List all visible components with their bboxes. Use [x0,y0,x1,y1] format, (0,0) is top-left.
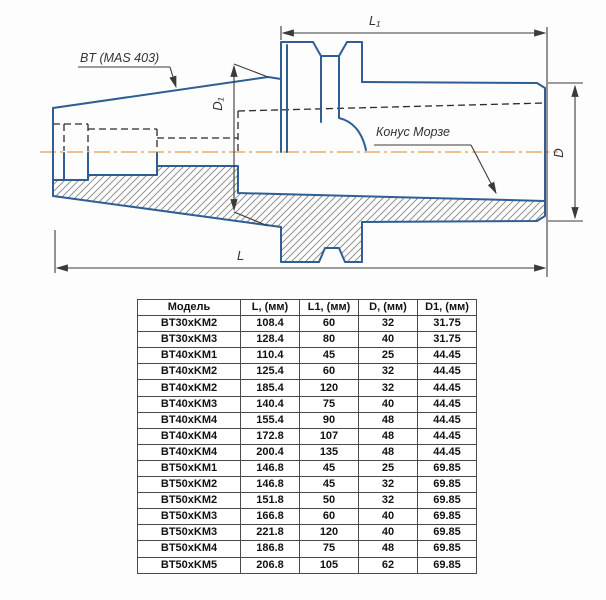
spec-table: Модель L, (мм) L1, (мм) D, (мм) D1, (мм)… [137,299,477,574]
value-cell: 40 [359,332,418,348]
model-cell: BT50xKM4 [138,541,241,557]
value-cell: 200.4 [241,444,300,460]
value-cell: 107 [300,428,359,444]
column-header-l1: L1, (мм) [300,300,359,316]
value-cell: 128.4 [241,332,300,348]
table-row: BT40xKM4200.41354844.45 [138,444,477,460]
d1-dimension-label: D₁ [210,97,225,111]
spec-table-body: BT30xKM2108.4603231.75BT30xKM3128.480403… [138,316,477,574]
value-cell: 75 [300,541,359,557]
section-hatch [53,166,545,262]
value-cell: 44.45 [418,428,477,444]
model-cell: BT40xKM4 [138,444,241,460]
value-cell: 155.4 [241,412,300,428]
value-cell: 45 [300,460,359,476]
value-cell: 48 [359,541,418,557]
value-cell: 50 [300,493,359,509]
value-cell: 80 [300,332,359,348]
value-cell: 32 [359,477,418,493]
model-cell: BT40xKM4 [138,428,241,444]
value-cell: 69.85 [418,477,477,493]
table-row: BT50xKM2151.8503269.85 [138,493,477,509]
value-cell: 45 [300,348,359,364]
table-row: BT30xKM3128.4804031.75 [138,332,477,348]
model-cell: BT50xKM1 [138,460,241,476]
value-cell: 48 [359,428,418,444]
value-cell: 120 [300,525,359,541]
model-cell: BT50xKM5 [138,557,241,573]
model-cell: BT40xKM4 [138,412,241,428]
table-row: BT50xKM3221.81204069.85 [138,525,477,541]
value-cell: 90 [300,412,359,428]
table-row: BT50xKM2146.8453269.85 [138,477,477,493]
morse-taper-callout: Конус Морзе [374,125,496,193]
value-cell: 31.75 [418,316,477,332]
value-cell: 60 [300,316,359,332]
value-cell: 146.8 [241,460,300,476]
column-header-model: Модель [138,300,241,316]
model-cell: BT30xKM3 [138,332,241,348]
value-cell: 32 [359,316,418,332]
value-cell: 25 [359,348,418,364]
value-cell: 32 [359,364,418,380]
value-cell: 44.45 [418,412,477,428]
value-cell: 40 [359,525,418,541]
hidden-bore-lines [53,103,545,151]
bt-callout-label: BT (MAS 403) [80,51,159,65]
table-row: BT30xKM2108.4603231.75 [138,316,477,332]
table-row: BT40xKM1110.4452544.45 [138,348,477,364]
model-cell: BT40xKM1 [138,348,241,364]
value-cell: 186.8 [241,541,300,557]
value-cell: 44.45 [418,380,477,396]
value-cell: 140.4 [241,396,300,412]
value-cell: 151.8 [241,493,300,509]
value-cell: 62 [359,557,418,573]
value-cell: 60 [300,509,359,525]
value-cell: 69.85 [418,557,477,573]
value-cell: 60 [300,364,359,380]
table-row: BT40xKM3140.4754044.45 [138,396,477,412]
value-cell: 32 [359,493,418,509]
model-cell: BT50xKM3 [138,509,241,525]
value-cell: 221.8 [241,525,300,541]
model-cell: BT40xKM2 [138,380,241,396]
table-row: BT40xKM2125.4603244.45 [138,364,477,380]
value-cell: 45 [300,477,359,493]
model-cell: BT40xKM2 [138,364,241,380]
value-cell: 120 [300,380,359,396]
value-cell: 206.8 [241,557,300,573]
table-row: BT40xKM2185.41203244.45 [138,380,477,396]
value-cell: 105 [300,557,359,573]
value-cell: 69.85 [418,509,477,525]
l1-dimension-label: L₁ [369,13,380,28]
value-cell: 166.8 [241,509,300,525]
model-cell: BT50xKM3 [138,525,241,541]
table-row: BT50xKM1146.8452569.85 [138,460,477,476]
table-row: BT40xKM4172.81074844.45 [138,428,477,444]
value-cell: 69.85 [418,460,477,476]
d-dimension-label: D [551,148,566,157]
value-cell: 44.45 [418,348,477,364]
value-cell: 40 [359,509,418,525]
dimension-d: D [548,83,583,221]
value-cell: 69.85 [418,541,477,557]
model-cell: BT40xKM3 [138,396,241,412]
table-row: BT50xKM3166.8604069.85 [138,509,477,525]
table-row: BT50xKM5206.81056269.85 [138,557,477,573]
table-row: BT40xKM4155.4904844.45 [138,412,477,428]
value-cell: 48 [359,444,418,460]
value-cell: 75 [300,396,359,412]
value-cell: 31.75 [418,332,477,348]
value-cell: 125.4 [241,364,300,380]
l-dimension-label: L [237,248,244,263]
model-cell: BT50xKM2 [138,493,241,509]
bt-callout-leader [170,67,176,87]
value-cell: 135 [300,444,359,460]
value-cell: 185.4 [241,380,300,396]
technical-drawing: L₁ D₁ D L BT (MAS 403) [0,0,606,300]
value-cell: 146.8 [241,477,300,493]
model-cell: BT50xKM2 [138,477,241,493]
value-cell: 110.4 [241,348,300,364]
value-cell: 69.85 [418,525,477,541]
value-cell: 69.85 [418,493,477,509]
column-header-d1: D1, (мм) [418,300,477,316]
bt-callout: BT (MAS 403) [78,51,176,87]
value-cell: 44.45 [418,396,477,412]
morse-callout-label: Конус Морзе [376,125,450,139]
value-cell: 40 [359,396,418,412]
page: L₁ D₁ D L BT (MAS 403) [0,0,606,600]
value-cell: 44.45 [418,364,477,380]
model-cell: BT30xKM2 [138,316,241,332]
table-header-row: Модель L, (мм) L1, (мм) D, (мм) D1, (мм) [138,300,477,316]
value-cell: 48 [359,412,418,428]
value-cell: 44.45 [418,444,477,460]
value-cell: 172.8 [241,428,300,444]
value-cell: 25 [359,460,418,476]
column-header-l: L, (мм) [241,300,300,316]
column-header-d: D, (мм) [359,300,418,316]
value-cell: 108.4 [241,316,300,332]
value-cell: 32 [359,380,418,396]
table-row: BT50xKM4186.8754869.85 [138,541,477,557]
